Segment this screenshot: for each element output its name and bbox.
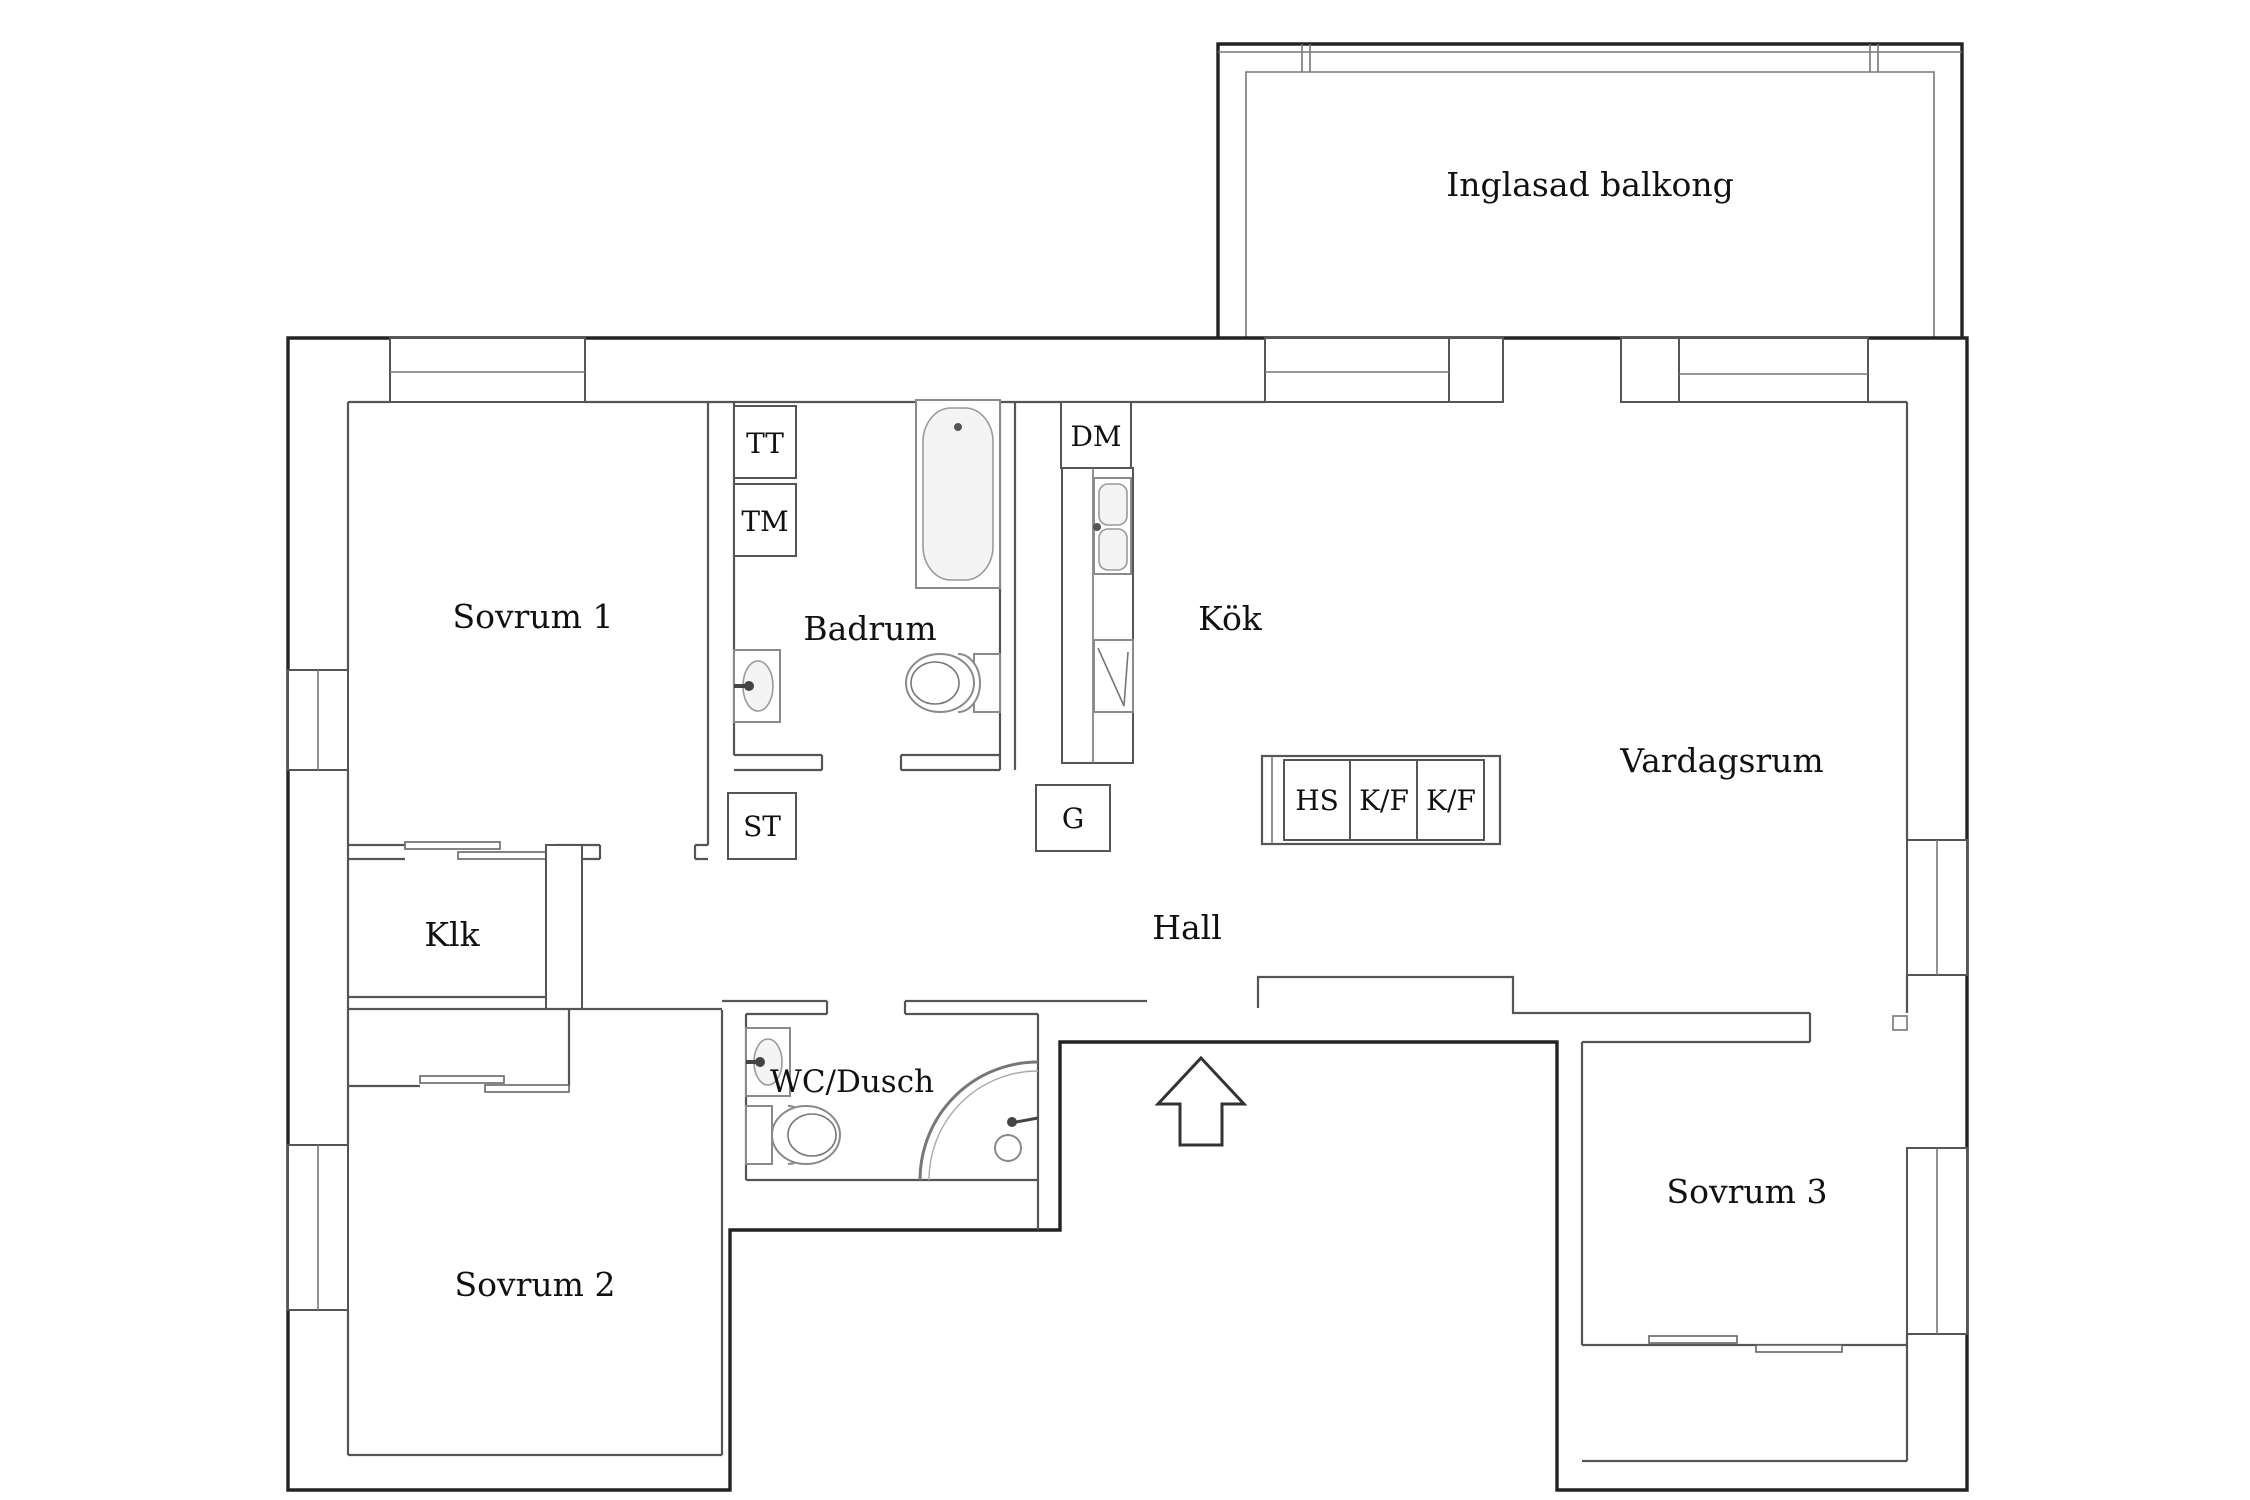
wc-dusch: WC/Dusch [746, 1014, 1038, 1230]
hall-south-wall-east [1258, 977, 1810, 1013]
hall-south-wall-west [722, 1001, 1147, 1014]
wc-toilet-icon [746, 1106, 840, 1164]
sliding-door-icon [420, 1076, 504, 1083]
north-wall [348, 338, 1907, 402]
window-living-east [1907, 840, 1967, 975]
window-bedroom1-west [288, 670, 348, 770]
bathroom-south-wall [734, 755, 1000, 770]
sliding-door-icon [405, 842, 500, 849]
g-label: G [1062, 802, 1084, 835]
klk-label: Klk [424, 915, 480, 954]
wall-pier [1449, 338, 1503, 402]
sliding-door-icon [485, 1085, 569, 1092]
bathroom: TT TM Badrum ST [708, 400, 1015, 859]
sliding-door-icon [458, 852, 553, 859]
hall-label: Hall [1152, 908, 1222, 947]
st-label: ST [743, 810, 781, 843]
bedroom1-label: Sovrum 1 [453, 597, 614, 636]
floor-plan-canvas: Inglasad balkong [0, 0, 2250, 1500]
hall: Hall [722, 908, 1810, 1145]
balcony-glazing-inner [1246, 72, 1934, 338]
kitchen-label: Kök [1198, 599, 1263, 638]
bedroom2-closet-front [348, 1009, 569, 1086]
kitchen-sink-icon [1093, 478, 1131, 574]
klk-east-wall [546, 845, 582, 1009]
window-bedroom1-north [390, 338, 585, 402]
sliding-door-icon [1756, 1345, 1842, 1352]
kf1-label: K/F [1359, 784, 1409, 817]
balcony-mullions [1302, 44, 1878, 72]
window-kitchen-north [1265, 338, 1449, 402]
hs-label: HS [1295, 784, 1339, 817]
window-bedroom3-east [1907, 1148, 1967, 1334]
bedroom2-label: Sovrum 2 [455, 1265, 616, 1304]
shower-icon [920, 1062, 1038, 1180]
wall-pier [1621, 338, 1679, 402]
bedroom3-closet [1582, 1345, 1907, 1461]
window-bedroom2-west [288, 1145, 348, 1310]
klk-south-wall [348, 997, 722, 1009]
bedroom3-label: Sovrum 3 [1667, 1172, 1828, 1211]
kf2-label: K/F [1426, 784, 1476, 817]
balcony: Inglasad balkong [1218, 44, 1962, 338]
west-wall [288, 402, 348, 1455]
entrance-arrow-icon [1158, 1058, 1244, 1145]
washing-machines: TT TM [734, 406, 796, 556]
bathroom-toilet-icon [906, 654, 1000, 712]
window-living-north [1679, 338, 1868, 402]
bathtub-icon [916, 400, 1000, 588]
tm-label: TM [741, 505, 788, 538]
bathroom-west-wall [708, 402, 734, 845]
tt-label: TT [746, 427, 784, 460]
east-wall [1893, 402, 1967, 1461]
closet-klk: Klk [348, 845, 722, 1009]
bedroom2-walls [348, 1010, 722, 1455]
bathroom-east-wall [1000, 402, 1015, 770]
bedroom3: Sovrum 3 [1582, 1013, 1907, 1461]
kitchen: DM G Kök HS K/F K/F [1036, 402, 1500, 851]
balcony-label: Inglasad balkong [1446, 165, 1733, 204]
bathroom-sink-icon [734, 650, 780, 722]
sliding-door-icon [1649, 1336, 1737, 1343]
living-label: Vardagsrum [1619, 741, 1823, 780]
bathroom-label: Badrum [803, 609, 936, 648]
radiator-notch [1893, 1016, 1907, 1030]
stove-icon [1094, 640, 1133, 712]
bedroom1: Sovrum 1 [348, 597, 708, 859]
dm-label: DM [1070, 420, 1121, 453]
bedroom2: Sovrum 2 [348, 1009, 722, 1455]
fridge-freezer-run: HS K/F K/F [1262, 756, 1500, 844]
floor-plan-svg: Inglasad balkong [0, 0, 2250, 1500]
wc-label: WC/Dusch [770, 1064, 934, 1100]
